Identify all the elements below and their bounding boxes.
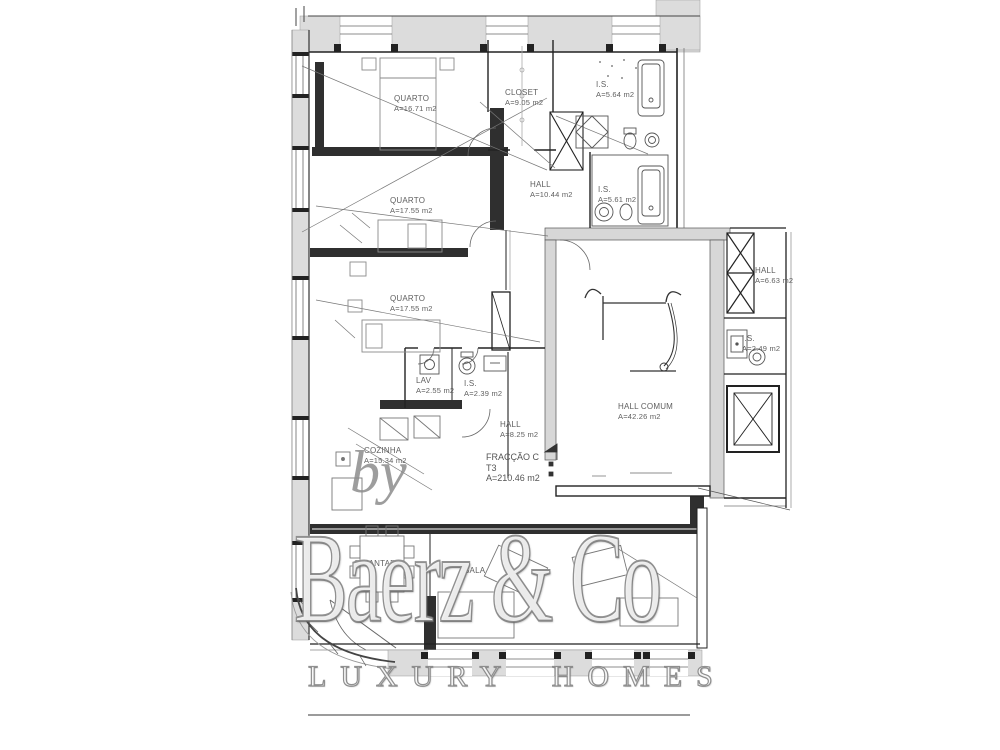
living-room-furniture (438, 545, 678, 638)
bathroom-1-fixtures (576, 59, 664, 149)
room-name: HALL (755, 266, 793, 276)
room-name: QUARTO (390, 294, 433, 304)
facade-top-band (300, 0, 700, 52)
room-area: A=42.26 m2 (618, 412, 673, 422)
room-name: LAV (416, 376, 454, 386)
room-label-is-3: I.S.A=2.49 m2 (742, 334, 780, 353)
hall-comum-bottom-wall (556, 486, 790, 510)
room-area: A=10.44 m2 (530, 190, 573, 200)
room-label-is-1: I.S.A=5.64 m2 (596, 80, 634, 99)
fraction-title: FRACÇÃO C T3 A=210.46 m2 (486, 452, 540, 484)
wall-right-upper (677, 48, 684, 232)
room-label-is-4: I.S.A=2.39 m2 (464, 379, 502, 398)
room-name: CLOSET (505, 88, 543, 98)
hall-comum-walls (545, 228, 730, 498)
room-label-s-jantar: S. JANTAR (354, 559, 396, 569)
room-name: S. JANTAR (354, 559, 396, 569)
room-label-hall-comum: HALL COMUMA=42.26 m2 (618, 402, 673, 421)
room-name: I.S. (596, 80, 634, 90)
room-name: QUARTO (394, 94, 437, 104)
room-area: A=2.39 m2 (464, 389, 502, 399)
room-label-closet: CLOSETA=9.05 m2 (505, 88, 543, 107)
fraction-type: T3 (486, 463, 540, 474)
room-area: A=2.55 m2 (416, 386, 454, 396)
room-area: A=15.34 m2 (364, 456, 407, 466)
room-label-is-2: I.S.A=5.61 m2 (598, 185, 636, 204)
room-name: HALL (530, 180, 573, 190)
room-area: A=5.61 m2 (598, 195, 636, 205)
hall-comum-feature (585, 289, 681, 476)
room-name: I.S. (742, 334, 780, 344)
room-label-quarto-1: QUARTOA=16.71 m2 (394, 94, 437, 113)
room-label-hall-3: HALLA=8.25 m2 (500, 420, 538, 439)
room-name: QUARTO (390, 196, 433, 206)
floorplan-drawing (0, 0, 1000, 750)
room-area: A=17.55 m2 (390, 304, 433, 314)
room-label-hall-1: HALLA=10.44 m2 (530, 180, 573, 199)
shaft-column-hall2 (727, 233, 754, 313)
elevator (727, 386, 779, 452)
room-label-lav: LAVA=2.55 m2 (416, 376, 454, 395)
room-label-hall-2: HALLA=6.63 m2 (755, 266, 793, 285)
facade-bottom-band (310, 644, 702, 676)
room-area: A=5.64 m2 (596, 90, 634, 100)
room-name: I.S. (464, 379, 502, 389)
room-area: A=6.63 m2 (755, 276, 793, 286)
wc-central-fixtures (420, 352, 506, 374)
room-label-sala: SALA (464, 566, 485, 576)
facade-left-band (292, 6, 309, 640)
room-name: SALA (464, 566, 485, 576)
fraction-name: FRACÇÃO C (486, 452, 540, 463)
fraction-area: A=210.46 m2 (486, 473, 540, 484)
room-area: A=8.25 m2 (500, 430, 538, 440)
room-name: HALL COMUM (618, 402, 673, 412)
room-area: A=2.49 m2 (742, 344, 780, 354)
door-leaf-panel (492, 292, 510, 350)
floorplan-page: QUARTOA=16.71 m2CLOSETA=9.05 m2I.S.A=5.6… (0, 0, 1000, 750)
room-label-cozinha: COZINHAA=15.34 m2 (364, 446, 407, 465)
room-name: I.S. (598, 185, 636, 195)
room-area: A=9.05 m2 (505, 98, 543, 108)
room-area: A=16.71 m2 (394, 104, 437, 114)
room-name: HALL (500, 420, 538, 430)
room-name: COZINHA (364, 446, 407, 456)
room-area: A=17.55 m2 (390, 206, 433, 216)
room-label-quarto-3: QUARTOA=17.55 m2 (390, 294, 433, 313)
room-label-quarto-2: QUARTOA=17.55 m2 (390, 196, 433, 215)
